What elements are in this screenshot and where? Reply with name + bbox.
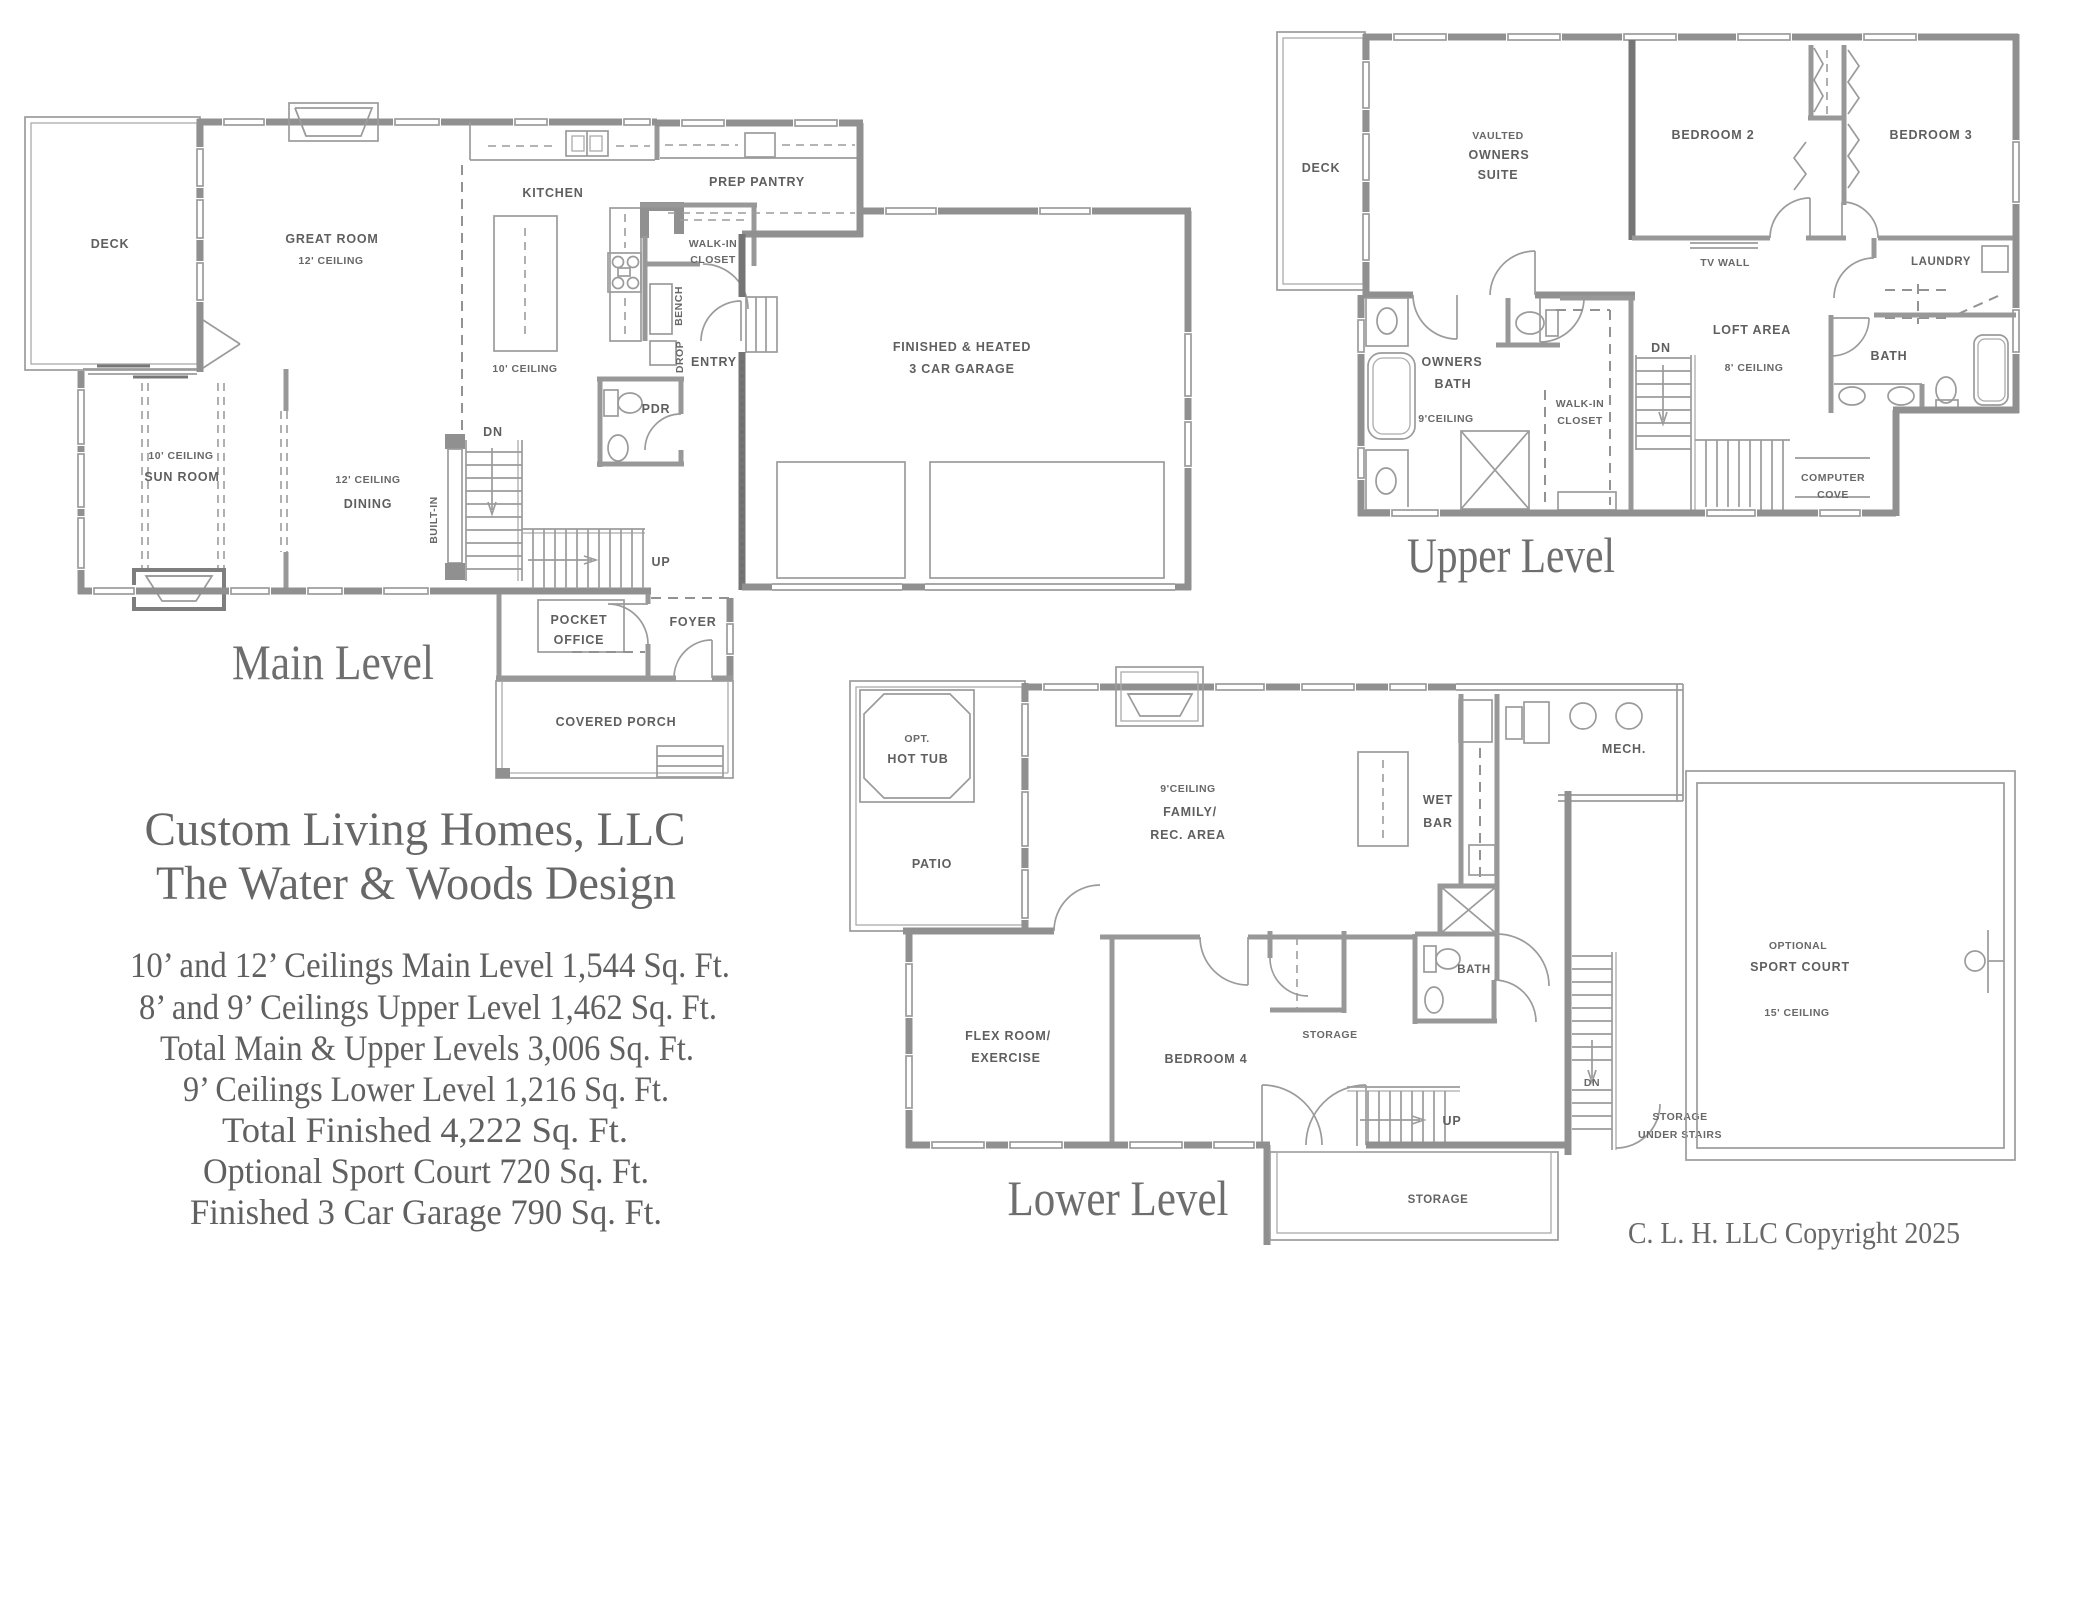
- svg-text:UP: UP: [652, 555, 671, 569]
- svg-text:PDR: PDR: [642, 402, 671, 416]
- svg-text:COVE: COVE: [1817, 489, 1849, 501]
- svg-text:STORAGE: STORAGE: [1302, 1029, 1357, 1041]
- svg-text:Custom Living Homes, LLC: Custom Living Homes, LLC: [145, 803, 686, 856]
- svg-text:9'CEILING: 9'CEILING: [1418, 413, 1473, 425]
- svg-text:OFFICE: OFFICE: [554, 633, 605, 647]
- svg-text:LAUNDRY: LAUNDRY: [1911, 256, 1971, 268]
- svg-text:EXERCISE: EXERCISE: [971, 1051, 1041, 1065]
- svg-text:Total Main & Upper Levels 3,00: Total Main & Upper Levels 3,006 Sq. Ft.: [160, 1028, 694, 1068]
- svg-text:WET: WET: [1423, 793, 1453, 807]
- svg-text:MECH.: MECH.: [1602, 742, 1646, 756]
- svg-text:8' CEILING: 8' CEILING: [1725, 362, 1784, 374]
- svg-text:DINING: DINING: [344, 497, 393, 511]
- svg-text:SUITE: SUITE: [1478, 168, 1519, 182]
- svg-text:BEDROOM 2: BEDROOM 2: [1672, 128, 1755, 142]
- svg-text:DECK: DECK: [1302, 161, 1341, 175]
- svg-text:TV WALL: TV WALL: [1700, 257, 1750, 269]
- svg-text:OWNERS: OWNERS: [1468, 148, 1529, 162]
- svg-text:POCKET: POCKET: [551, 613, 608, 627]
- svg-text:OPT.: OPT.: [904, 733, 929, 745]
- svg-text:C. L. H. LLC Copyright 2025: C. L. H. LLC Copyright 2025: [1628, 1215, 1960, 1250]
- svg-text:3 CAR GARAGE: 3 CAR GARAGE: [909, 362, 1014, 376]
- svg-text:OWNERS: OWNERS: [1421, 355, 1482, 369]
- svg-text:STORAGE: STORAGE: [1408, 1194, 1469, 1206]
- svg-text:BEDROOM 3: BEDROOM 3: [1890, 128, 1973, 142]
- svg-text:HOT TUB: HOT TUB: [887, 752, 948, 766]
- svg-text:10' CEILING: 10' CEILING: [492, 363, 557, 375]
- svg-text:WALK-IN: WALK-IN: [1556, 398, 1604, 410]
- svg-text:BATH: BATH: [1435, 377, 1472, 391]
- svg-text:Optional Sport Court 720 Sq. F: Optional Sport Court 720 Sq. Ft.: [203, 1151, 649, 1191]
- svg-text:FLEX ROOM/: FLEX ROOM/: [965, 1029, 1051, 1043]
- svg-text:DROP: DROP: [674, 341, 686, 373]
- svg-text:Main Level: Main Level: [232, 634, 434, 690]
- svg-text:BAR: BAR: [1423, 816, 1452, 830]
- svg-text:12' CEILING: 12' CEILING: [298, 255, 363, 267]
- svg-text:Finished 3 Car Garage 790 Sq.: Finished 3 Car Garage 790 Sq. Ft.: [190, 1192, 662, 1232]
- svg-text:BATH: BATH: [1457, 964, 1491, 976]
- svg-text:REC. AREA: REC. AREA: [1150, 828, 1226, 842]
- svg-text:DN: DN: [483, 425, 503, 439]
- svg-text:PREP PANTRY: PREP PANTRY: [709, 175, 805, 189]
- svg-text:FOYER: FOYER: [669, 615, 716, 629]
- svg-text:DN: DN: [1651, 341, 1671, 355]
- svg-text:ENTRY: ENTRY: [691, 355, 737, 369]
- svg-text:Total Finished 4,222 Sq. Ft.: Total Finished 4,222 Sq. Ft.: [222, 1110, 628, 1150]
- svg-text:Lower Level: Lower Level: [1008, 1170, 1229, 1226]
- svg-text:LOFT AREA: LOFT AREA: [1713, 323, 1791, 337]
- svg-text:12' CEILING: 12' CEILING: [335, 474, 400, 486]
- svg-text:FINISHED & HEATED: FINISHED & HEATED: [893, 340, 1031, 354]
- svg-text:DN: DN: [1584, 1077, 1600, 1089]
- svg-text:9’ Ceilings Lower Level 1,216: 9’ Ceilings Lower Level 1,216 Sq. Ft.: [183, 1069, 669, 1109]
- svg-text:COVERED PORCH: COVERED PORCH: [556, 715, 677, 729]
- svg-text:BATH: BATH: [1871, 349, 1908, 363]
- svg-text:OPTIONAL: OPTIONAL: [1769, 940, 1827, 952]
- svg-text:UNDER STAIRS: UNDER STAIRS: [1638, 1129, 1722, 1141]
- svg-text:FAMILY/: FAMILY/: [1163, 805, 1217, 819]
- svg-text:15' CEILING: 15' CEILING: [1764, 1007, 1829, 1019]
- svg-text:BENCH: BENCH: [673, 286, 685, 326]
- svg-text:8’ and 9’ Ceilings Upper Level: 8’ and 9’ Ceilings Upper Level 1,462 Sq.…: [139, 987, 717, 1027]
- svg-text:STORAGE: STORAGE: [1652, 1111, 1707, 1123]
- svg-text:KITCHEN: KITCHEN: [522, 186, 583, 200]
- svg-text:SUN ROOM: SUN ROOM: [144, 470, 219, 484]
- svg-text:GREAT ROOM: GREAT ROOM: [285, 232, 378, 246]
- svg-text:COMPUTER: COMPUTER: [1801, 472, 1865, 484]
- svg-text:DECK: DECK: [91, 237, 130, 251]
- svg-text:10’ and 12’ Ceilings Main Leve: 10’ and 12’ Ceilings Main Level 1,544 Sq…: [130, 945, 730, 985]
- svg-text:CLOSET: CLOSET: [1557, 415, 1603, 427]
- svg-text:BEDROOM 4: BEDROOM 4: [1165, 1052, 1248, 1066]
- svg-text:The Water & Woods Design: The Water & Woods Design: [156, 857, 676, 910]
- svg-text:10' CEILING: 10' CEILING: [148, 450, 213, 462]
- svg-text:PATIO: PATIO: [912, 857, 952, 871]
- svg-text:Upper Level: Upper Level: [1407, 527, 1615, 583]
- svg-text:SPORT COURT: SPORT COURT: [1750, 960, 1850, 974]
- svg-text:BUILT-IN: BUILT-IN: [428, 496, 440, 544]
- svg-text:VAULTED: VAULTED: [1472, 130, 1524, 142]
- svg-text:9'CEILING: 9'CEILING: [1160, 783, 1215, 795]
- svg-text:WALK-IN: WALK-IN: [689, 238, 737, 250]
- svg-text:UP: UP: [1443, 1114, 1462, 1128]
